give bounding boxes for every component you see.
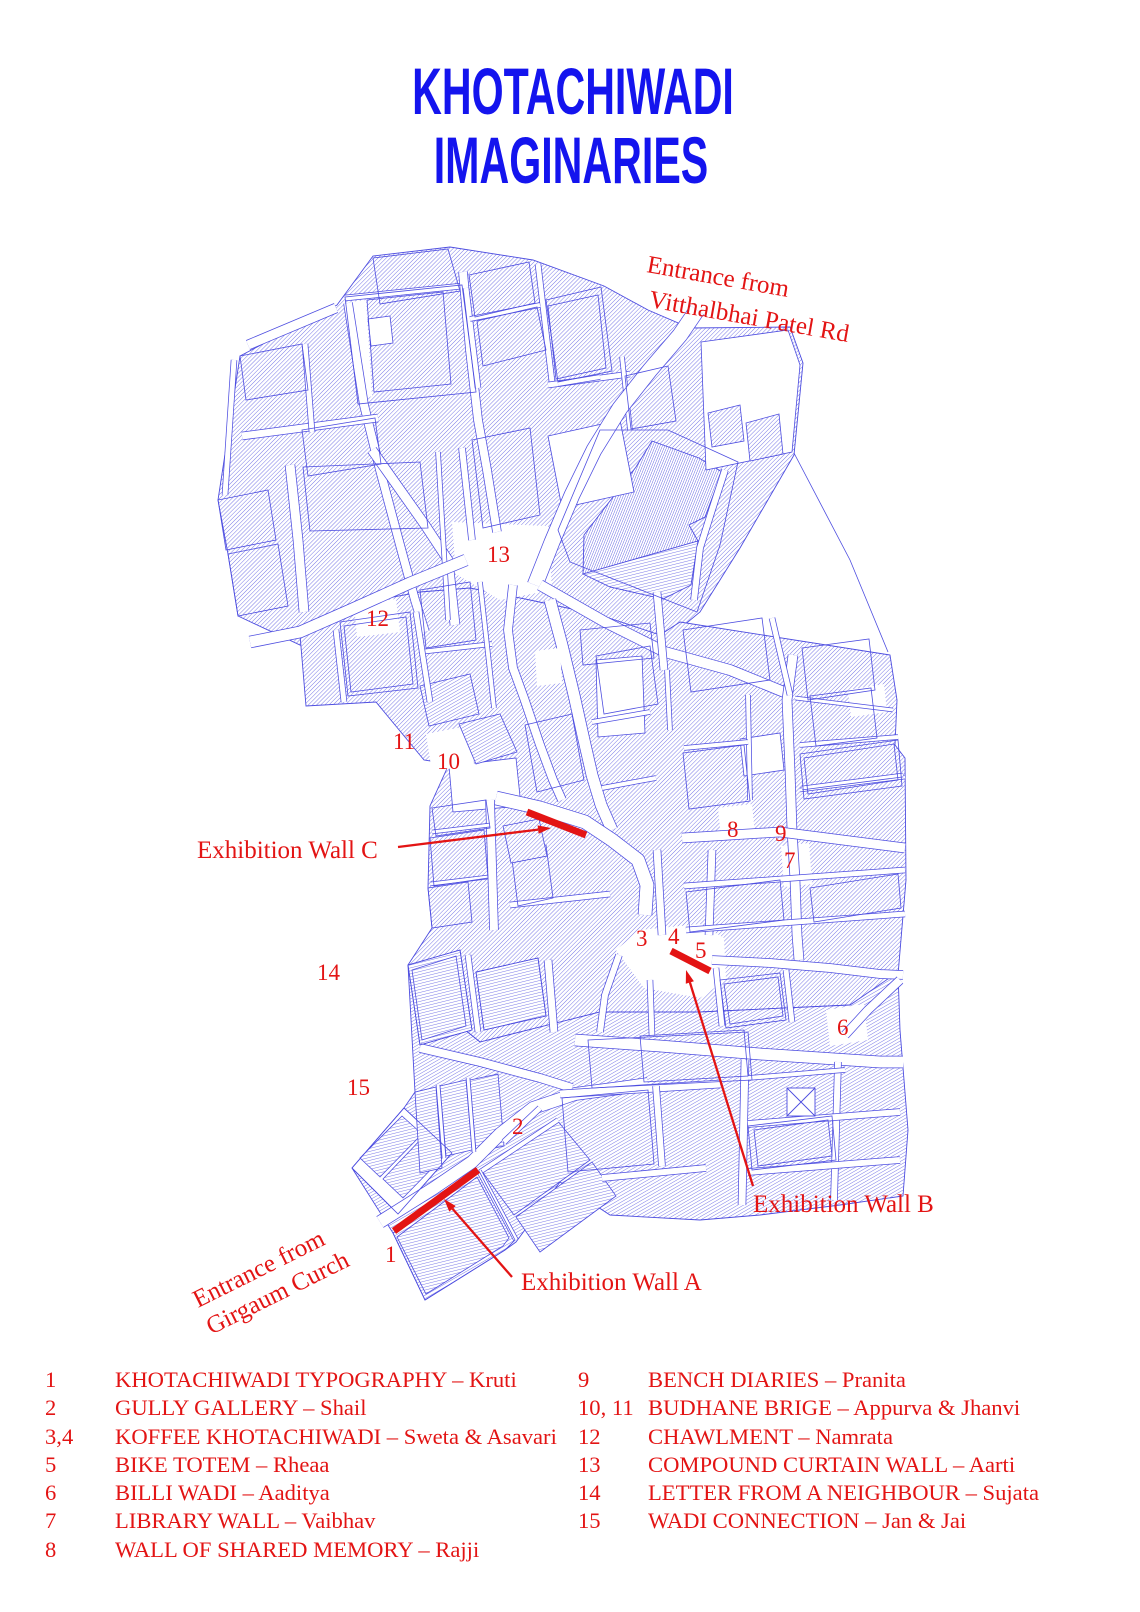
svg-text:13: 13	[578, 1452, 601, 1477]
svg-text:KHOTACHIWADI TYPOGRAPHY – Krut: KHOTACHIWADI TYPOGRAPHY – Kruti	[115, 1367, 517, 1392]
svg-text:BIKE TOTEM – Rheaa: BIKE TOTEM – Rheaa	[115, 1452, 329, 1477]
svg-text:15: 15	[578, 1508, 601, 1533]
svg-text:11: 11	[393, 729, 415, 754]
svg-text:14: 14	[578, 1480, 601, 1505]
svg-text:6: 6	[45, 1480, 56, 1505]
svg-text:BUDHANE BRIGE – Appurva & Jhan: BUDHANE BRIGE – Appurva & Jhanvi	[648, 1395, 1020, 1420]
svg-text:8: 8	[45, 1537, 56, 1562]
svg-text:Exhibition Wall C: Exhibition Wall C	[197, 837, 378, 864]
svg-text:IMAGINARIES: IMAGINARIES	[434, 123, 709, 197]
svg-text:3: 3	[636, 926, 648, 951]
svg-text:Exhibition Wall B: Exhibition Wall B	[753, 1191, 934, 1218]
svg-text:14: 14	[317, 960, 341, 985]
svg-text:Exhibition Wall A: Exhibition Wall A	[521, 1269, 702, 1296]
svg-text:12: 12	[578, 1424, 601, 1449]
svg-text:4: 4	[668, 924, 680, 949]
svg-text:3,4: 3,4	[45, 1424, 73, 1449]
svg-text:15: 15	[347, 1075, 370, 1100]
svg-text:6: 6	[837, 1015, 849, 1040]
svg-text:1: 1	[45, 1367, 56, 1392]
svg-text:5: 5	[695, 938, 707, 963]
svg-text:KOFFEE KHOTACHIWADI – Sweta &: KOFFEE KHOTACHIWADI – Sweta & Asavari	[115, 1424, 557, 1449]
svg-text:7: 7	[45, 1508, 56, 1533]
svg-text:BENCH DIARIES – Pranita: BENCH DIARIES – Pranita	[648, 1367, 906, 1392]
svg-text:1: 1	[385, 1242, 397, 1267]
svg-text:10: 10	[437, 749, 460, 774]
svg-text:WADI CONNECTION – Jan & Jai: WADI CONNECTION – Jan & Jai	[648, 1508, 966, 1533]
svg-text:2: 2	[512, 1114, 524, 1139]
svg-text:13: 13	[487, 542, 510, 567]
svg-text:5: 5	[45, 1452, 56, 1477]
svg-text:8: 8	[727, 817, 739, 842]
svg-text:CHAWLMENT – Namrata: CHAWLMENT – Namrata	[648, 1424, 893, 1449]
svg-text:9: 9	[775, 821, 787, 846]
svg-text:WALL OF SHARED MEMORY – Rajji: WALL OF SHARED MEMORY – Rajji	[115, 1537, 479, 1562]
svg-text:10, 11: 10, 11	[578, 1395, 634, 1420]
svg-text:GULLY GALLERY – Shail: GULLY GALLERY – Shail	[115, 1395, 366, 1420]
svg-text:7: 7	[784, 848, 796, 873]
svg-text:9: 9	[578, 1367, 589, 1392]
svg-text:COMPOUND CURTAIN WALL – Aarti: COMPOUND CURTAIN WALL – Aarti	[648, 1452, 1015, 1477]
svg-text:LIBRARY WALL – Vaibhav: LIBRARY WALL – Vaibhav	[115, 1508, 376, 1533]
svg-text:LETTER FROM A NEIGHBOUR – Suja: LETTER FROM A NEIGHBOUR – Sujata	[648, 1480, 1039, 1505]
svg-text:2: 2	[45, 1395, 56, 1420]
svg-text:12: 12	[366, 606, 389, 631]
svg-text:BILLI WADI – Aaditya: BILLI WADI – Aaditya	[115, 1480, 330, 1505]
svg-text:KHOTACHIWADI: KHOTACHIWADI	[412, 54, 734, 128]
